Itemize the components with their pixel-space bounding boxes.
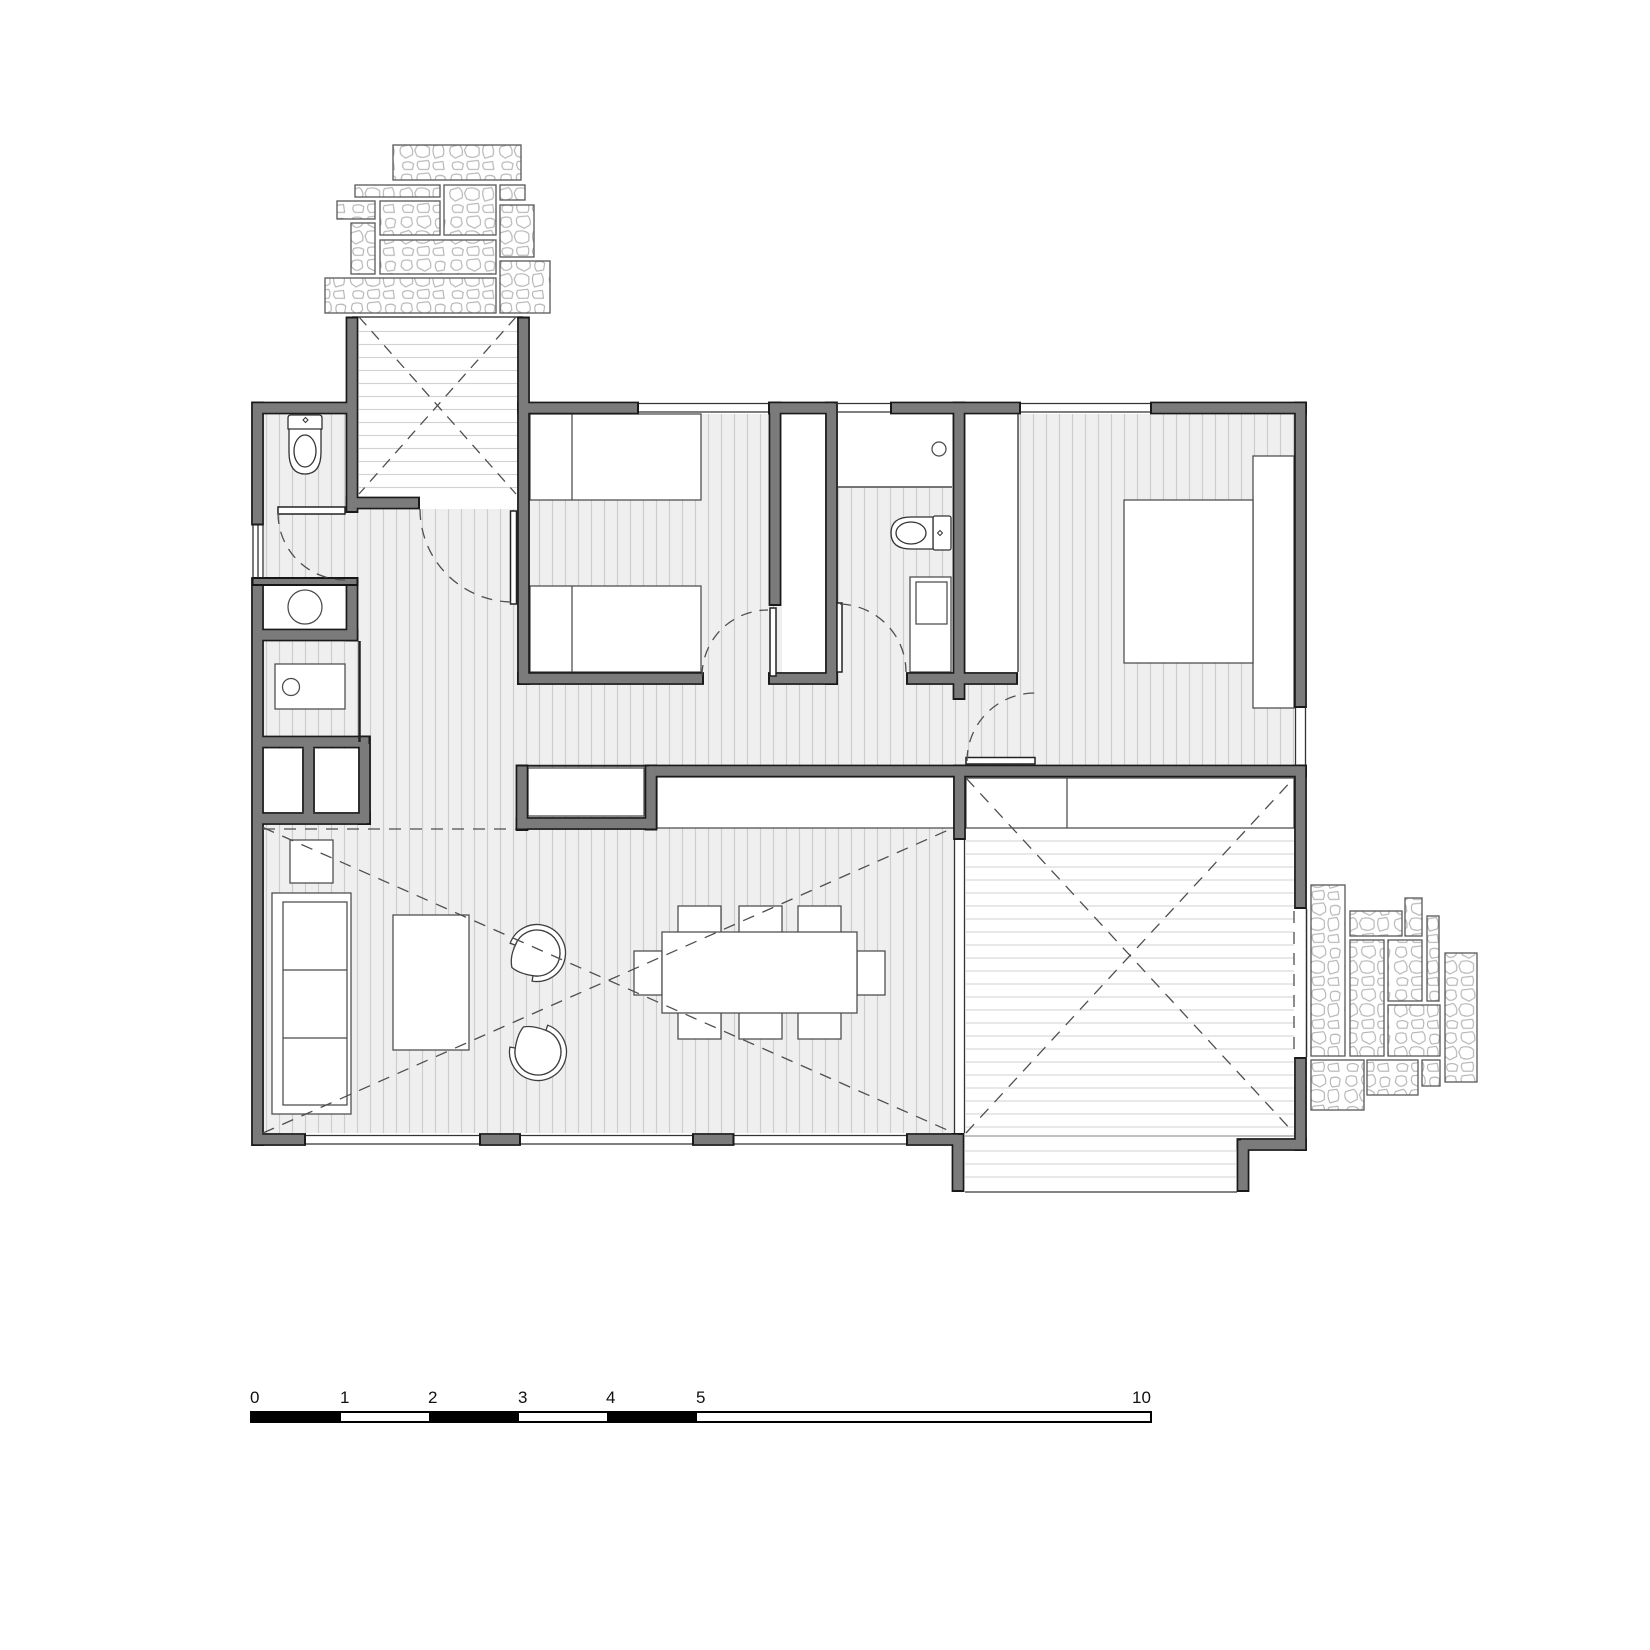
svg-text:5: 5 [696, 1388, 705, 1407]
svg-text:10: 10 [1132, 1388, 1151, 1407]
svg-text:2: 2 [428, 1388, 437, 1407]
svg-text:4: 4 [606, 1388, 615, 1407]
svg-text:1: 1 [340, 1388, 349, 1407]
svg-text:3: 3 [518, 1388, 527, 1407]
svg-text:0: 0 [250, 1388, 259, 1407]
